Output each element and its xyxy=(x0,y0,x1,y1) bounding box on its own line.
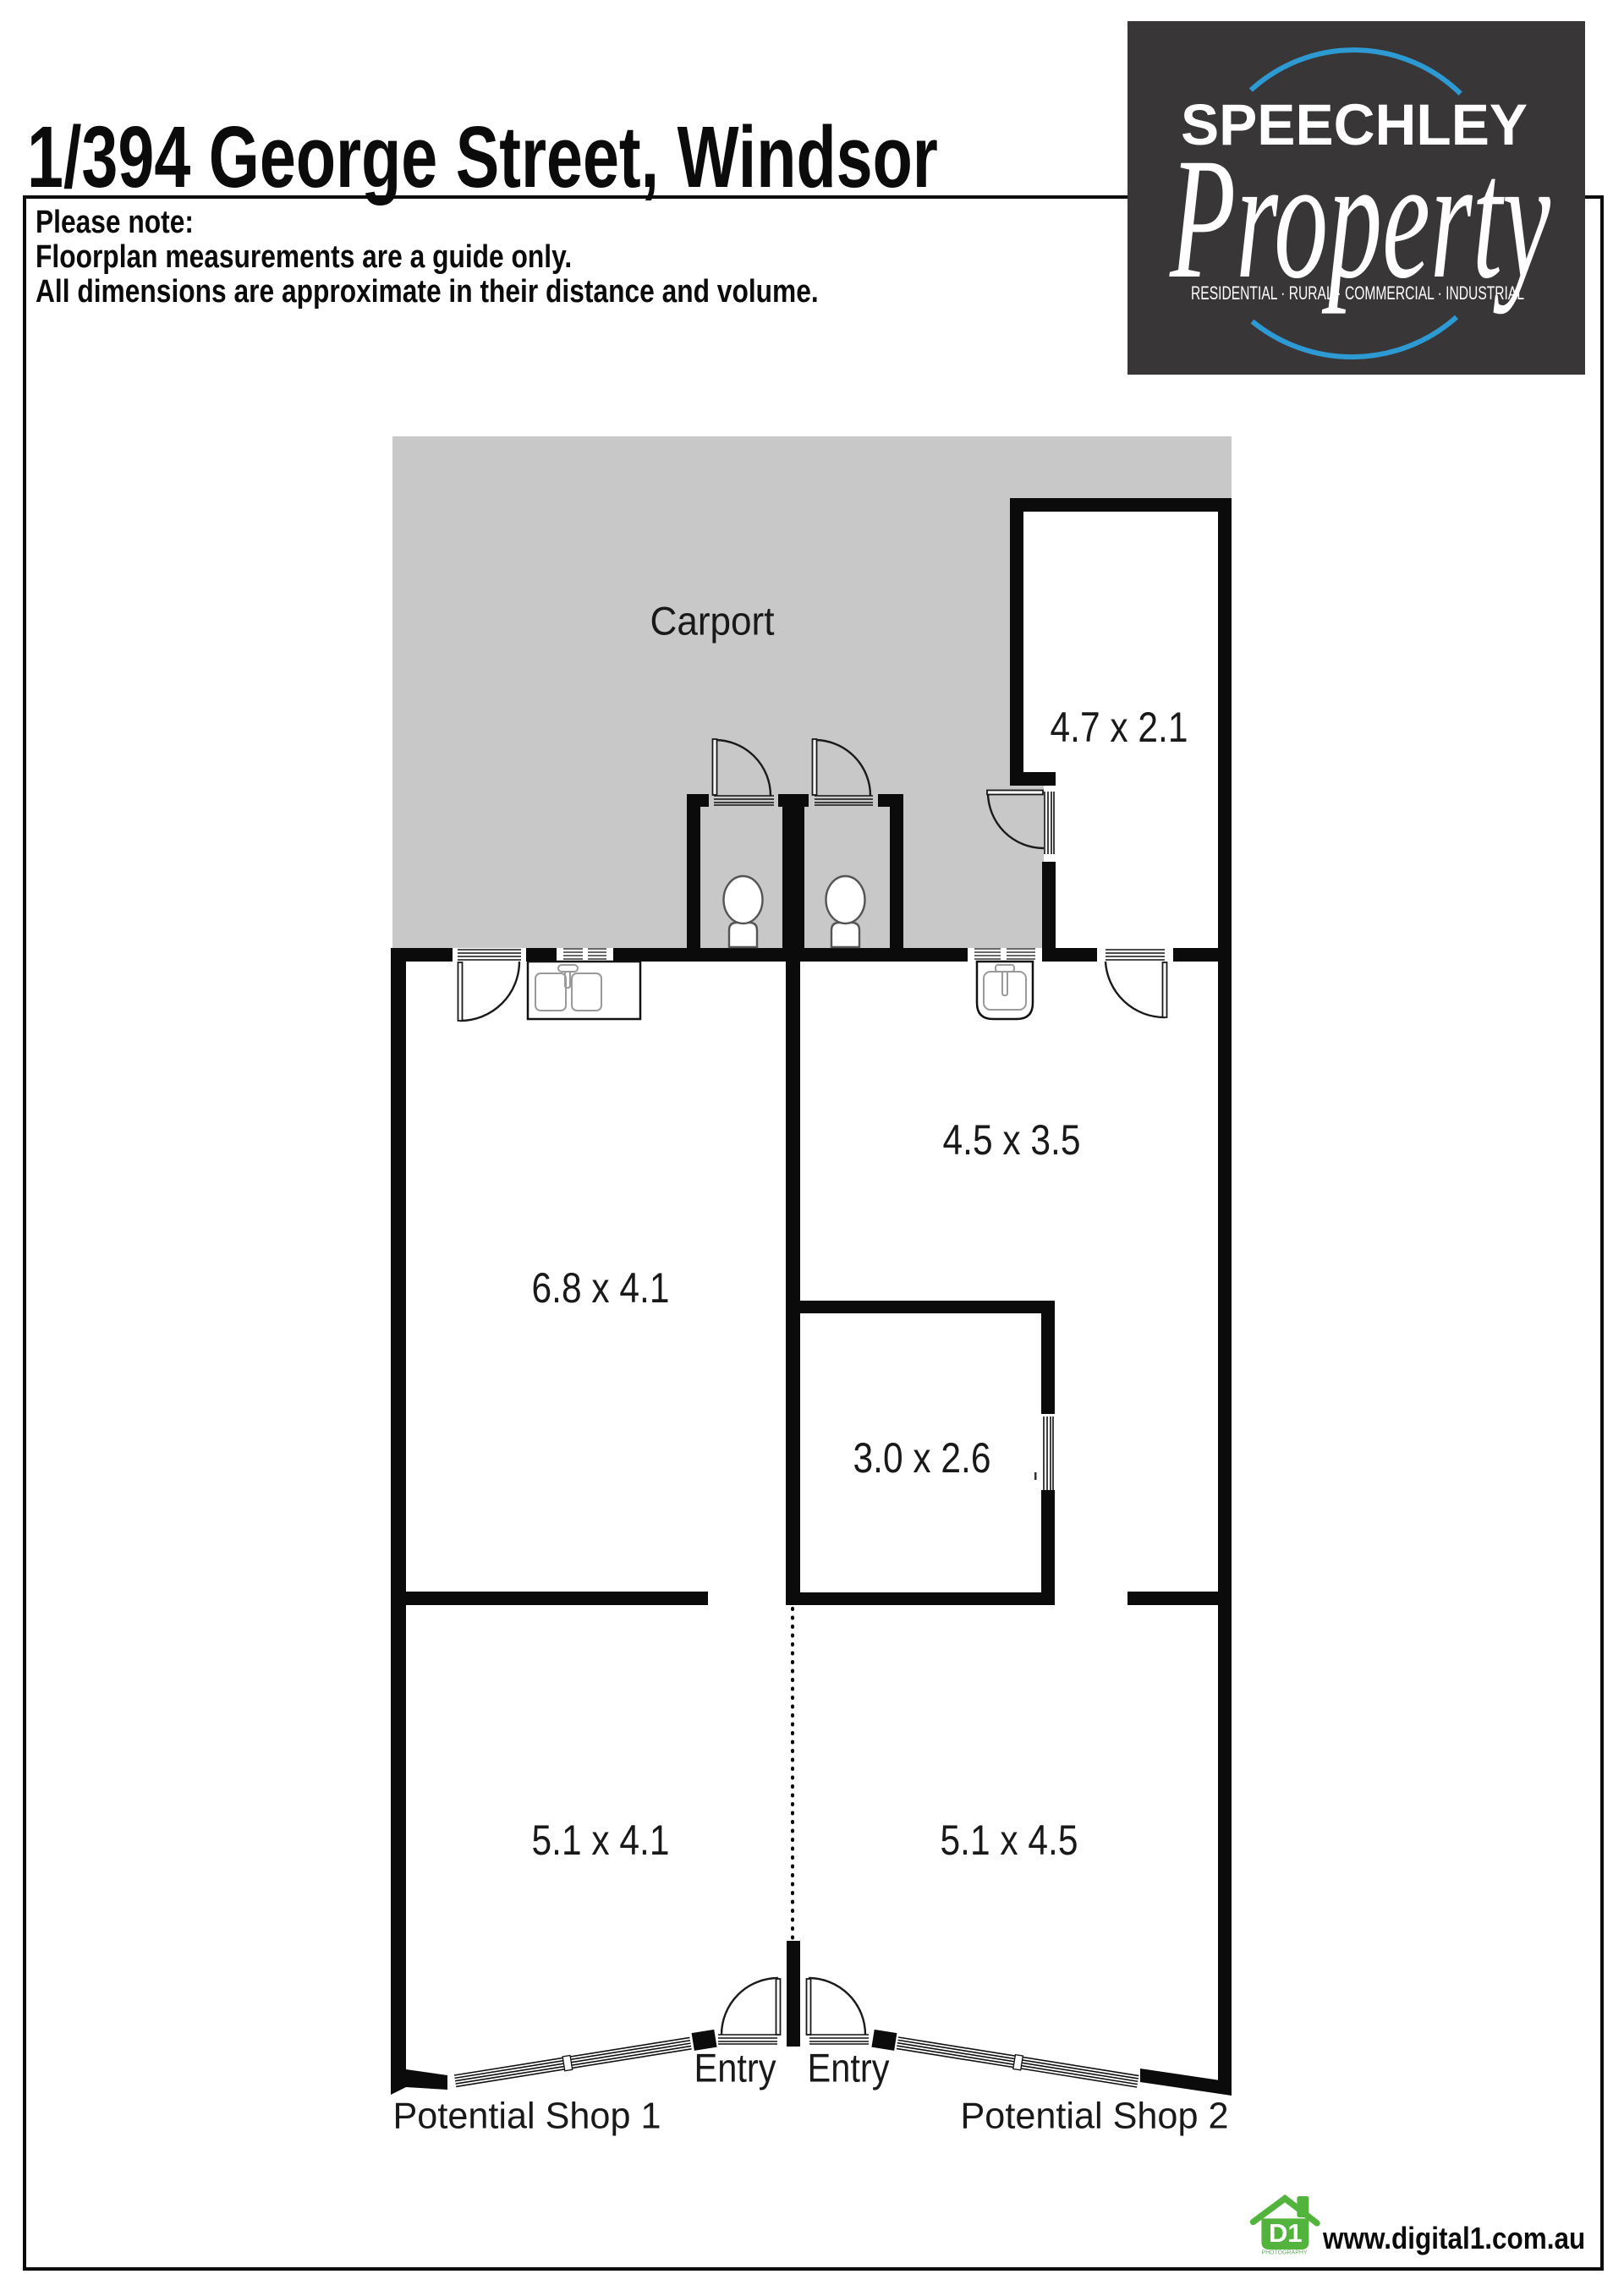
svg-text:Carport: Carport xyxy=(650,599,775,644)
svg-text:www.digital1.com.au: www.digital1.com.au xyxy=(1322,2222,1585,2255)
svg-text:4.7 x 2.1: 4.7 x 2.1 xyxy=(1051,704,1188,751)
svg-text:Potential Shop 2: Potential Shop 2 xyxy=(961,2096,1229,2137)
svg-text:Entry: Entry xyxy=(694,2046,776,2091)
svg-text:D1: D1 xyxy=(1269,2218,1303,2248)
svg-text:Entry: Entry xyxy=(808,2046,890,2091)
svg-text:3.0 x 2.6: 3.0 x 2.6 xyxy=(853,1434,991,1482)
svg-text:Potential Shop 1: Potential Shop 1 xyxy=(393,2096,661,2137)
svg-text:4.5 x 3.5: 4.5 x 3.5 xyxy=(943,1116,1081,1164)
svg-text:PHOTOGRAPHY: PHOTOGRAPHY xyxy=(1262,2250,1308,2256)
svg-text:6.8 x 4.1: 6.8 x 4.1 xyxy=(532,1264,670,1312)
svg-text:5.1 x 4.1: 5.1 x 4.1 xyxy=(532,1817,670,1864)
svg-text:5.1 x 4.5: 5.1 x 4.5 xyxy=(941,1817,1078,1864)
